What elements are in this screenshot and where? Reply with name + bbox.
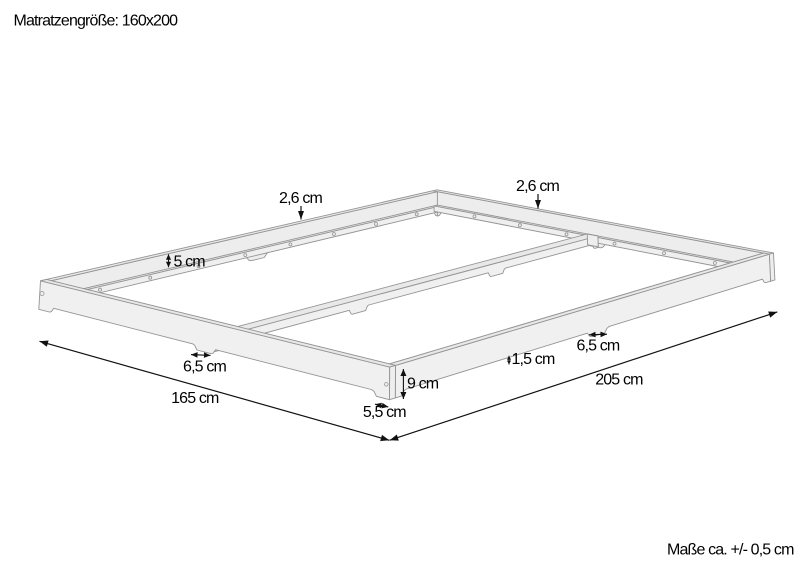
- svg-text:Matratzengröße: 160x200: Matratzengröße: 160x200: [14, 13, 179, 30]
- svg-text:2,6 cm: 2,6 cm: [279, 190, 322, 207]
- svg-text:165 cm: 165 cm: [171, 390, 219, 407]
- svg-text:6,5 cm: 6,5 cm: [183, 359, 226, 376]
- svg-text:205 cm: 205 cm: [595, 372, 643, 389]
- svg-text:9 cm: 9 cm: [407, 376, 439, 393]
- svg-text:Maße ca. +/- 0,5 cm: Maße ca. +/- 0,5 cm: [667, 542, 794, 559]
- svg-text:5 cm: 5 cm: [174, 254, 206, 271]
- svg-text:6,5 cm: 6,5 cm: [576, 338, 619, 355]
- svg-text:2,6 cm: 2,6 cm: [516, 178, 559, 195]
- svg-text:1,5 cm: 1,5 cm: [512, 351, 555, 368]
